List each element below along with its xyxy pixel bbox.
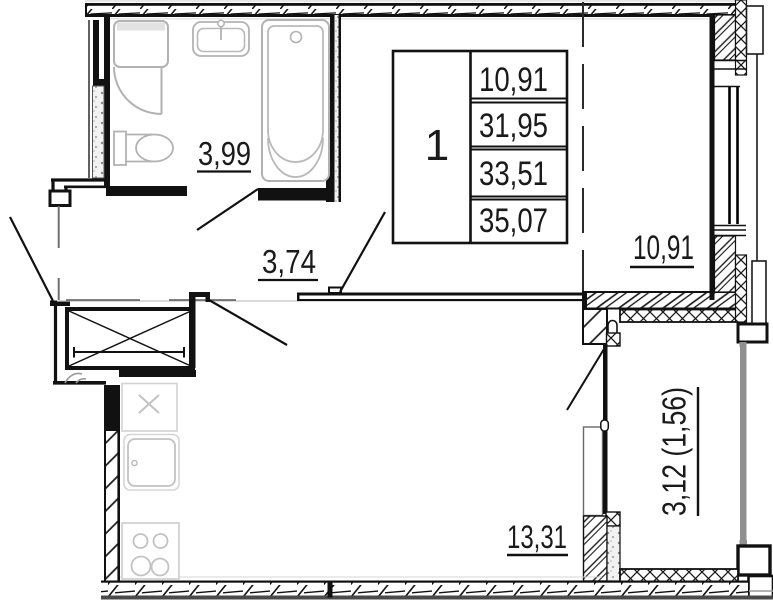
svg-text:31,95: 31,95	[479, 107, 548, 145]
svg-text:1: 1	[425, 121, 449, 170]
svg-text:10,91: 10,91	[479, 61, 548, 99]
svg-text:35,07: 35,07	[479, 202, 548, 240]
svg-text:33,51: 33,51	[479, 155, 548, 193]
svg-text:3,12 (1,56): 3,12 (1,56)	[656, 387, 693, 516]
svg-text:3,74: 3,74	[262, 243, 316, 280]
svg-text:13,31: 13,31	[507, 519, 567, 555]
svg-text:3,99: 3,99	[198, 135, 251, 172]
svg-text:10,91: 10,91	[633, 229, 694, 267]
